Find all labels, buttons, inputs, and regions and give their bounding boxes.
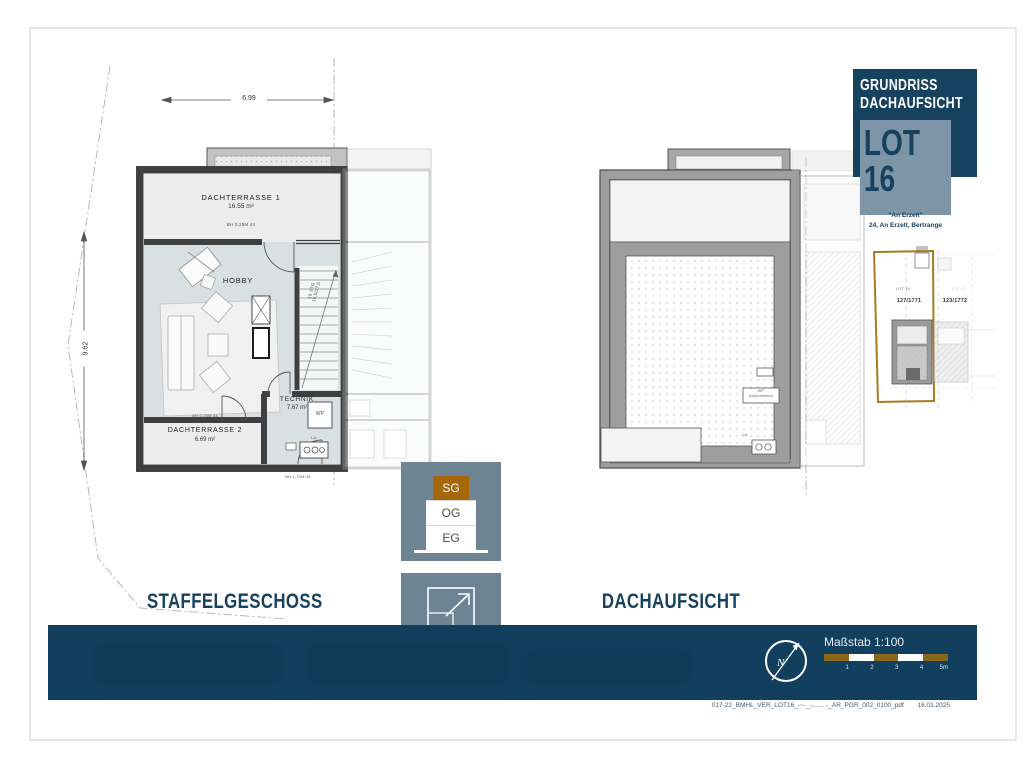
- dim-height: 9.62: [83, 331, 90, 367]
- dim-width: 6.99: [231, 95, 267, 102]
- floor-selector: SG OG EG: [401, 462, 501, 561]
- sheet-title-line1: GRUNDRISS: [860, 77, 950, 95]
- neighbour-unit-right: [792, 151, 864, 466]
- project-address: 24, An Erzelt, Bertrange: [860, 221, 951, 231]
- sill-note-terrace1: BH 0,25M 44: [201, 222, 281, 227]
- room-area-dachterrasse2: 6.69 m²: [135, 437, 275, 443]
- project-name: "An Erzelt": [860, 211, 951, 221]
- room-label-technik: TECHNIK: [262, 396, 332, 403]
- file-name: 017-22_BMHL_VER_LOT16_-~-_-........-_AR_…: [712, 702, 904, 709]
- scale-ticks: 1 2 3 4 5m: [824, 665, 954, 671]
- site-plan: [874, 246, 996, 408]
- site-lot16-label: LOT 16: [888, 286, 918, 291]
- lu-roof-label: LÜ: [738, 432, 752, 437]
- site-building-lot16: [892, 320, 932, 384]
- north-arrow-icon: N: [762, 637, 810, 685]
- wp-outdoor-label: WP Außeneinheit: [743, 389, 779, 398]
- room-label-dachterrasse2: DACHTERRASSE 2: [135, 427, 275, 434]
- floor-tab-og[interactable]: OG: [426, 500, 476, 525]
- right-plan: [600, 149, 800, 468]
- sheet-title-line2: DACHAUFSICHT: [860, 95, 950, 113]
- floor-tab-eg[interactable]: EG: [426, 525, 476, 550]
- site-lot17-label: LOT 17: [944, 286, 974, 291]
- scale-label: Maßstab 1:100: [824, 635, 904, 649]
- file-date: 16.01.2025: [917, 702, 950, 709]
- footer-bar: N Maßstab 1:100 1 2 3 4 5m: [48, 625, 977, 700]
- wp-label: WP: [308, 411, 332, 417]
- north-letter: N: [776, 657, 785, 669]
- room-label-hobby: HOBBY: [200, 276, 276, 285]
- neighbour-unit-left: [344, 149, 431, 468]
- parcel-number-left: 127/1771: [888, 298, 930, 304]
- scale-bar: [824, 654, 948, 661]
- sill-note-terrace2: BH 0,25M 44: [165, 413, 245, 418]
- lot-number: LOT 16: [860, 120, 931, 197]
- lu-label: LÜ: [300, 435, 328, 440]
- file-reference: 017-22_BMHL_VER_LOT16_-~-_-........-_AR_…: [640, 702, 950, 709]
- caption-right: DACHAUFSICHT: [591, 590, 751, 614]
- room-area-dachterrasse1: 16.55 m²: [171, 203, 311, 210]
- room-label-dachterrasse1: DACHTERRASSE 1: [171, 193, 311, 202]
- sill-note-bottom: BH 1,70M 44: [266, 474, 330, 479]
- parcel-number-right: 123/1772: [934, 298, 976, 304]
- plan-sheet-page: DACHTERRASSE 1 16.55 m² BH 0,25M 44 HOBB…: [0, 0, 1024, 768]
- floor-tab-sg[interactable]: SG: [433, 476, 469, 500]
- floor-stack-icon: SG OG EG: [426, 462, 476, 550]
- lot-badge: LOT 16 "An Erzelt" 24, An Erzelt, Bertra…: [860, 120, 951, 215]
- site-building-neighbour: [934, 322, 996, 382]
- caption-left: STAFFELGESCHOSS: [147, 590, 307, 614]
